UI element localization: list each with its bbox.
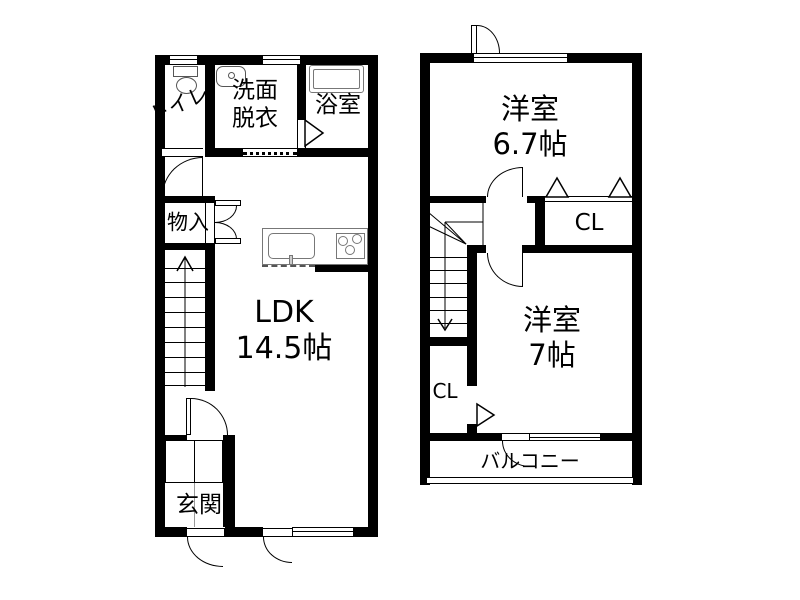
closet-folding-door bbox=[545, 196, 632, 202]
bath-label: 浴室 bbox=[315, 92, 361, 120]
wall bbox=[632, 53, 642, 485]
closet1-folding-door-icon bbox=[609, 178, 631, 197]
closet1-label: CL bbox=[575, 210, 604, 238]
wall bbox=[205, 243, 215, 391]
door-leaf bbox=[186, 528, 225, 537]
stairs-second-floor bbox=[427, 245, 467, 337]
window bbox=[263, 55, 300, 65]
door-opening bbox=[485, 245, 523, 253]
entrance-label: 玄関 bbox=[176, 492, 222, 520]
wall bbox=[467, 245, 477, 385]
washroom-label: 洗面 脱衣 bbox=[232, 77, 278, 132]
closet2-label: CL bbox=[432, 379, 457, 403]
bathtub-inner bbox=[313, 69, 360, 89]
door-arc-front-door bbox=[187, 537, 223, 567]
door-leaf bbox=[501, 433, 530, 441]
window bbox=[530, 433, 600, 441]
stove-burner-icon bbox=[338, 236, 348, 246]
wall bbox=[225, 527, 263, 537]
wall bbox=[523, 245, 642, 253]
closet2-door-icon bbox=[477, 404, 494, 426]
wall bbox=[223, 435, 235, 443]
balcony-label: バルコニー bbox=[480, 449, 580, 473]
bath-door-icon bbox=[305, 120, 323, 146]
door-opening bbox=[485, 196, 528, 203]
wall bbox=[155, 196, 215, 203]
balcony-rail bbox=[427, 477, 633, 484]
wall bbox=[205, 148, 243, 157]
wall bbox=[223, 443, 235, 527]
door-arc-storage-bottom bbox=[215, 222, 237, 239]
sliding-door bbox=[243, 148, 297, 157]
door-opening bbox=[467, 385, 477, 425]
ldk-label: LDK 14.5帖 bbox=[236, 295, 333, 367]
wall bbox=[368, 55, 378, 537]
wall bbox=[600, 433, 642, 441]
closet1-folding-door-icon bbox=[546, 178, 568, 197]
window bbox=[474, 53, 567, 63]
wall bbox=[297, 148, 368, 157]
door-arc-toilet bbox=[162, 157, 203, 196]
door-arc-f2-top bbox=[477, 25, 500, 53]
window bbox=[170, 55, 197, 65]
stove-burner-icon bbox=[352, 234, 362, 244]
window bbox=[292, 527, 353, 537]
plan-symbols bbox=[0, 0, 800, 600]
door-arc-bedroom1 bbox=[487, 167, 523, 197]
door-opening bbox=[297, 120, 306, 148]
storage-label: 物入 bbox=[167, 210, 209, 235]
wall bbox=[297, 65, 306, 120]
door-opening bbox=[162, 148, 203, 157]
door-arc-storage-top bbox=[215, 206, 237, 223]
door-leaf bbox=[262, 528, 293, 537]
wall bbox=[205, 65, 215, 157]
shoe-cabinet-divider bbox=[194, 440, 195, 483]
stove-burner-icon bbox=[345, 245, 355, 255]
wall bbox=[353, 527, 378, 537]
bedroom2-label: 洋室 7帖 bbox=[523, 303, 581, 373]
door-arc-bedroom2 bbox=[487, 253, 523, 287]
stairs-first-floor bbox=[165, 253, 205, 393]
wall bbox=[420, 196, 485, 203]
bedroom1-label: 洋室 6.7帖 bbox=[492, 92, 567, 162]
floor-plan: トイレ 洗面 脱衣 浴室 物入 LDK 14.5帖 玄関 洋室 6.7帖 CL … bbox=[0, 0, 800, 600]
door-arc-terrace bbox=[263, 537, 292, 563]
door-arc-entrance-hall bbox=[191, 398, 228, 435]
counter-open-line bbox=[262, 265, 315, 267]
toilet-tank-icon bbox=[173, 66, 198, 77]
wall bbox=[155, 527, 187, 537]
wall bbox=[420, 433, 502, 441]
kitchen-faucet-icon bbox=[289, 255, 293, 265]
